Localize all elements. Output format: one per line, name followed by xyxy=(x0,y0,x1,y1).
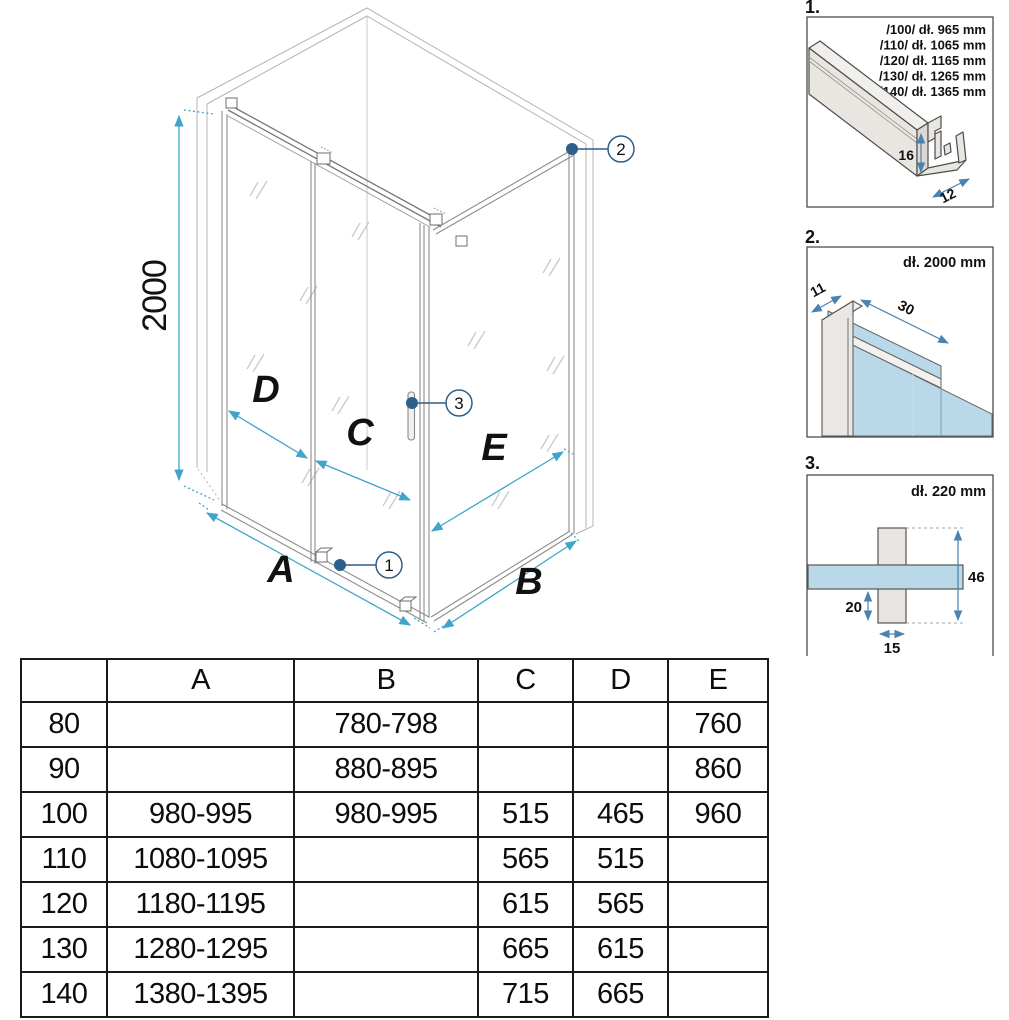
cell-d xyxy=(573,702,668,747)
cell-c xyxy=(478,702,573,747)
table-row: 90 880-895 860 xyxy=(21,747,768,792)
detail-3-guide-section: 3. dł. 220 mm 46 20 15 xyxy=(805,453,993,656)
detail-3-dim-46: 46 xyxy=(968,569,985,586)
cell-c: 715 xyxy=(478,972,573,1017)
cell-e xyxy=(668,837,768,882)
callout-3-dot xyxy=(406,397,418,409)
table-header-E: E xyxy=(668,659,768,702)
dim-label-E: E xyxy=(481,427,508,469)
dim-label-C: C xyxy=(346,412,374,454)
cell-e: 960 xyxy=(668,792,768,837)
dimensions-table: A B C D E 80 780-798 760 90 880-895 860 … xyxy=(20,658,769,1018)
callout-3-number: 3 xyxy=(454,394,463,413)
cell-b: 880-895 xyxy=(294,747,478,792)
cell-size: 140 xyxy=(21,972,107,1017)
cell-c: 515 xyxy=(478,792,573,837)
table-header-C: C xyxy=(478,659,573,702)
detail-1-size-line: /110/ dł. 1065 mm xyxy=(880,38,986,53)
dimension-lines xyxy=(179,110,579,632)
guide-block-top xyxy=(316,548,332,552)
cell-b xyxy=(294,882,478,927)
cell-size: 130 xyxy=(21,927,107,972)
cell-a: 1180-1195 xyxy=(107,882,294,927)
detail-1-size-line: /120/ dł. 1165 mm xyxy=(880,53,986,68)
enclosure-isometric-drawing: 2000 D C E A B 1 2 xyxy=(136,8,634,632)
cell-c xyxy=(478,747,573,792)
table-header-row: A B C D E xyxy=(21,659,768,702)
bottom-guides xyxy=(316,548,416,611)
cell-d: 515 xyxy=(573,837,668,882)
room-outline xyxy=(197,8,593,534)
cell-e xyxy=(668,882,768,927)
table-row: 100 980-995 980-995 515 465 960 xyxy=(21,792,768,837)
wall-bracket xyxy=(456,236,467,246)
callouts: 1 2 3 xyxy=(334,136,634,578)
cell-c: 615 xyxy=(478,882,573,927)
detail-2-length: dł. 2000 mm xyxy=(903,255,986,271)
table-header-B: B xyxy=(294,659,478,702)
guide-block-top xyxy=(400,597,416,601)
cell-d xyxy=(573,747,668,792)
cell-e xyxy=(668,927,768,972)
table-row: 130 1280-1295 665 615 xyxy=(21,927,768,972)
dim-line-C xyxy=(316,461,410,500)
detail-3-length: dł. 220 mm xyxy=(911,484,986,500)
rail-bracket xyxy=(226,98,237,108)
cell-d: 615 xyxy=(573,927,668,972)
cell-b xyxy=(294,972,478,1017)
cell-b: 980-995 xyxy=(294,792,478,837)
detail-1-size-line: /130/ dł. 1265 mm xyxy=(879,69,986,84)
detail-1-dim-16: 16 xyxy=(898,147,914,163)
callout-1: 1 xyxy=(334,552,402,578)
callout-2-number: 2 xyxy=(616,140,625,159)
cell-c: 565 xyxy=(478,837,573,882)
shower-enclosure-spec-page: 2000 D C E A B 1 2 xyxy=(0,0,1009,1020)
cell-a: 1280-1295 xyxy=(107,927,294,972)
table-row: 140 1380-1395 715 665 xyxy=(21,972,768,1017)
table-header-A: A xyxy=(107,659,294,702)
cell-e xyxy=(668,972,768,1017)
cell-size: 80 xyxy=(21,702,107,747)
dim-line-B xyxy=(443,541,576,628)
detail-3-label: 3. xyxy=(805,453,820,473)
callout-2-dot xyxy=(566,143,578,155)
guide-block xyxy=(400,601,411,611)
callout-1-number: 1 xyxy=(384,556,393,575)
dim-label-A: A xyxy=(266,549,294,591)
table-row: 120 1180-1195 615 565 xyxy=(21,882,768,927)
detail-1-size-line: /140/ dł. 1365 mm xyxy=(879,84,986,99)
side-glass-wall xyxy=(431,149,574,621)
detail-2-wall-profile: 2. dł. 2000 mm 11 30 xyxy=(805,227,993,437)
dim-label-D: D xyxy=(252,369,279,411)
top-rail xyxy=(226,98,467,246)
cell-b xyxy=(294,927,478,972)
callout-1-dot xyxy=(334,559,346,571)
detail-1-rail-profile: 1. /100/ dł. 965 mm /110/ dł. 1065 mm /1… xyxy=(805,0,993,207)
dim-line-D xyxy=(229,411,307,458)
cell-b: 780-798 xyxy=(294,702,478,747)
cell-e: 860 xyxy=(668,747,768,792)
cell-a: 980-995 xyxy=(107,792,294,837)
cell-d: 465 xyxy=(573,792,668,837)
dim-label-B: B xyxy=(515,561,542,603)
table-header-size xyxy=(21,659,107,702)
cell-size: 90 xyxy=(21,747,107,792)
rail-end-bracket xyxy=(430,214,442,225)
cell-a: 1380-1395 xyxy=(107,972,294,1017)
detail-3-dim-15: 15 xyxy=(884,640,901,656)
roller-carriage xyxy=(317,153,330,164)
detail-2-label: 2. xyxy=(805,227,820,247)
cell-b xyxy=(294,837,478,882)
glass-reflection-marks xyxy=(247,181,564,509)
cell-c: 665 xyxy=(478,927,573,972)
table-header-D: D xyxy=(573,659,668,702)
cell-a: 1080-1095 xyxy=(107,837,294,882)
cell-size: 110 xyxy=(21,837,107,882)
detail-1-size-line: /100/ dł. 965 mm xyxy=(886,22,986,37)
cell-a xyxy=(107,702,294,747)
callout-3: 3 xyxy=(406,390,472,416)
detail-3-dim-20: 20 xyxy=(845,599,862,616)
cell-d: 665 xyxy=(573,972,668,1017)
table-row: 110 1080-1095 565 515 xyxy=(21,837,768,882)
cell-d: 565 xyxy=(573,882,668,927)
cell-size: 100 xyxy=(21,792,107,837)
cell-a xyxy=(107,747,294,792)
front-glass-wall xyxy=(221,111,430,623)
cell-size: 120 xyxy=(21,882,107,927)
drawings-svg: 2000 D C E A B 1 2 xyxy=(0,0,1009,656)
height-dim-label: 2000 xyxy=(136,260,174,332)
guide-block xyxy=(316,552,327,562)
cell-e: 760 xyxy=(668,702,768,747)
callout-2: 2 xyxy=(566,136,634,162)
detail-1-label: 1. xyxy=(805,0,820,17)
table-row: 80 780-798 760 xyxy=(21,702,768,747)
